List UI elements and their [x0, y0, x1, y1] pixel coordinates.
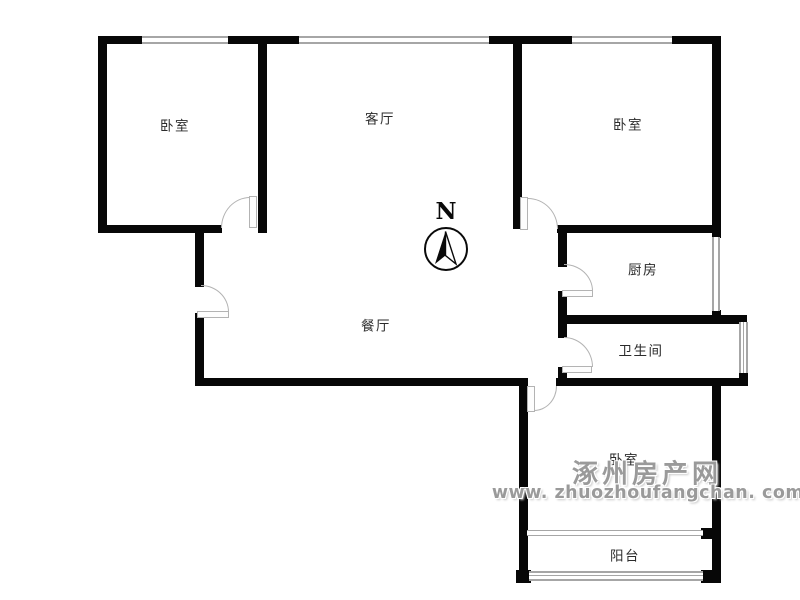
compass-circle-icon [424, 227, 468, 271]
door-leaf [562, 366, 592, 373]
door-swing-arc [564, 264, 593, 291]
door-swing-arc [201, 285, 229, 312]
window [527, 530, 703, 536]
room-label-balcony: 阳台 [610, 550, 640, 564]
watermark-site-url: www. zhuozhoufangchan. com [492, 483, 800, 503]
wall [712, 36, 721, 238]
door-swing-arc [221, 197, 250, 228]
wall [558, 225, 567, 267]
window [299, 36, 489, 44]
window [529, 571, 703, 581]
wall [195, 225, 204, 287]
wall [195, 313, 204, 386]
door-leaf [249, 196, 257, 228]
door-leaf [520, 197, 528, 230]
room-label-bathroom: 卫生间 [619, 345, 664, 359]
floor-plan: 卧室 客厅 卧室 厨房 餐厅 卫生间 卧室 阳台 N 涿州房产网 www. zh… [0, 0, 800, 600]
door-leaf [527, 386, 535, 412]
north-label: N [420, 200, 472, 223]
north-indicator: N [420, 200, 472, 280]
room-label-dining-room: 餐厅 [361, 320, 391, 334]
room-label-bedroom-top-left: 卧室 [160, 120, 190, 134]
wall [556, 378, 747, 386]
wall [557, 225, 721, 233]
wall [258, 36, 267, 233]
wall [563, 315, 747, 324]
door-swing-arc [528, 198, 558, 229]
window [572, 36, 672, 44]
door-swing-arc [564, 337, 593, 367]
window [739, 322, 748, 373]
room-label-living-room: 客厅 [365, 113, 395, 127]
wall [195, 378, 524, 386]
door-leaf [197, 311, 229, 318]
door-swing-arc [534, 386, 557, 411]
wall [701, 570, 716, 583]
compass-needle-icon [428, 231, 463, 266]
window [142, 36, 228, 44]
wall [98, 36, 107, 233]
wall [488, 36, 573, 44]
window [712, 237, 720, 311]
door-leaf [562, 290, 593, 297]
room-label-kitchen: 厨房 [628, 264, 658, 278]
room-label-bedroom-top-right: 卧室 [613, 119, 643, 133]
